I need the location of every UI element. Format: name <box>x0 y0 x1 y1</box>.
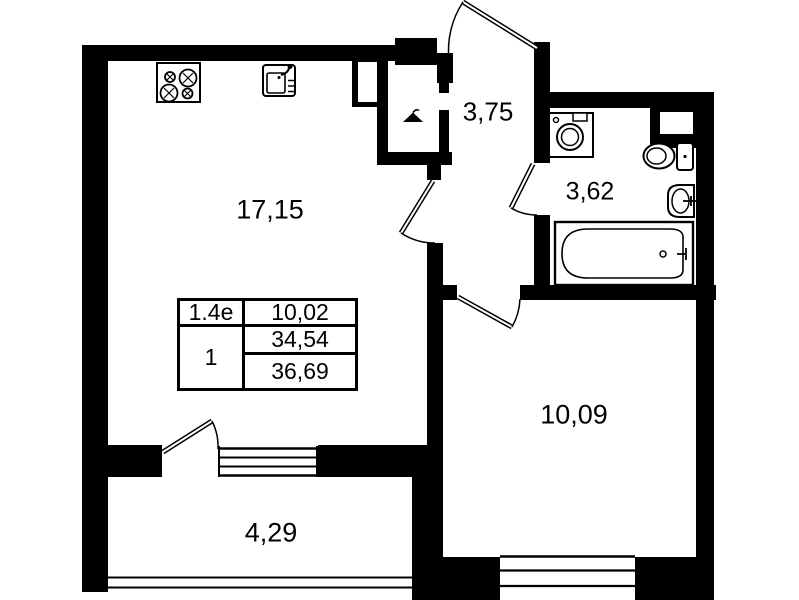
wall-segment <box>395 38 437 65</box>
door-swing-arc <box>512 299 520 327</box>
door-swing-arc <box>511 208 537 215</box>
bathtub-icon <box>555 222 693 285</box>
wall-segment <box>318 445 443 477</box>
wall-segment <box>635 557 714 600</box>
wall-segment <box>534 215 550 285</box>
unit-type-cell: 1.4е <box>180 301 245 327</box>
balcony-window <box>218 446 318 477</box>
bedroom-window <box>500 557 635 587</box>
wall-segment <box>108 445 162 477</box>
wall-segment <box>439 110 449 152</box>
entrance-door <box>448 2 537 60</box>
wall-segment <box>377 152 452 165</box>
balcony-railing <box>108 578 412 588</box>
living-room-door <box>401 181 435 243</box>
wall-segment <box>534 42 550 163</box>
rooms-count-cell: 1 <box>180 327 245 388</box>
stove-icon <box>157 63 200 102</box>
wall-segment <box>377 107 388 155</box>
wall-segment <box>437 53 453 83</box>
hanger-icon <box>403 110 423 122</box>
wall-segment <box>696 92 714 600</box>
washbasin-icon <box>668 185 699 217</box>
bathroom-door <box>511 164 537 215</box>
wall-segment <box>550 92 700 108</box>
wall-segment <box>427 165 441 180</box>
living-area-cell: 10,02 <box>245 301 355 327</box>
washing-machine-icon <box>549 113 593 157</box>
door-swing-arc <box>448 2 463 60</box>
kitchen-sink-icon <box>263 64 295 96</box>
balcony-door <box>163 421 218 452</box>
wall-segment <box>427 243 443 477</box>
info-table: 1.4е 10,02 1 34,54 36,69 <box>177 298 358 391</box>
bedroom-door <box>458 297 520 327</box>
wall-segment <box>424 557 500 600</box>
wall-segment <box>82 45 395 61</box>
room-label-balcony: 4,29 <box>245 518 298 549</box>
wall-segment <box>439 80 449 93</box>
toilet-icon <box>644 143 694 170</box>
floor-plan: 17,15 3,75 3,62 10,09 4,29 1.4е 10,02 1 … <box>0 0 799 600</box>
door-swing-arc <box>212 421 218 449</box>
floor-plan-drawing <box>0 0 799 600</box>
wall-segment <box>520 285 716 300</box>
room-label-living-room-kitchen: 17,15 <box>236 195 304 226</box>
vent-duct <box>358 62 377 102</box>
total-area-cell: 36,69 <box>245 355 355 388</box>
room-label-bathroom: 3,62 <box>566 178 615 207</box>
vent-duct <box>660 112 693 134</box>
room-label-bedroom: 10,09 <box>540 400 608 431</box>
door-swing-arc <box>401 233 435 243</box>
area-without-balcony-cell: 34,54 <box>245 327 355 355</box>
room-label-hallway: 3,75 <box>463 97 514 128</box>
wall-segment <box>82 45 108 592</box>
wall-segment <box>438 285 457 300</box>
